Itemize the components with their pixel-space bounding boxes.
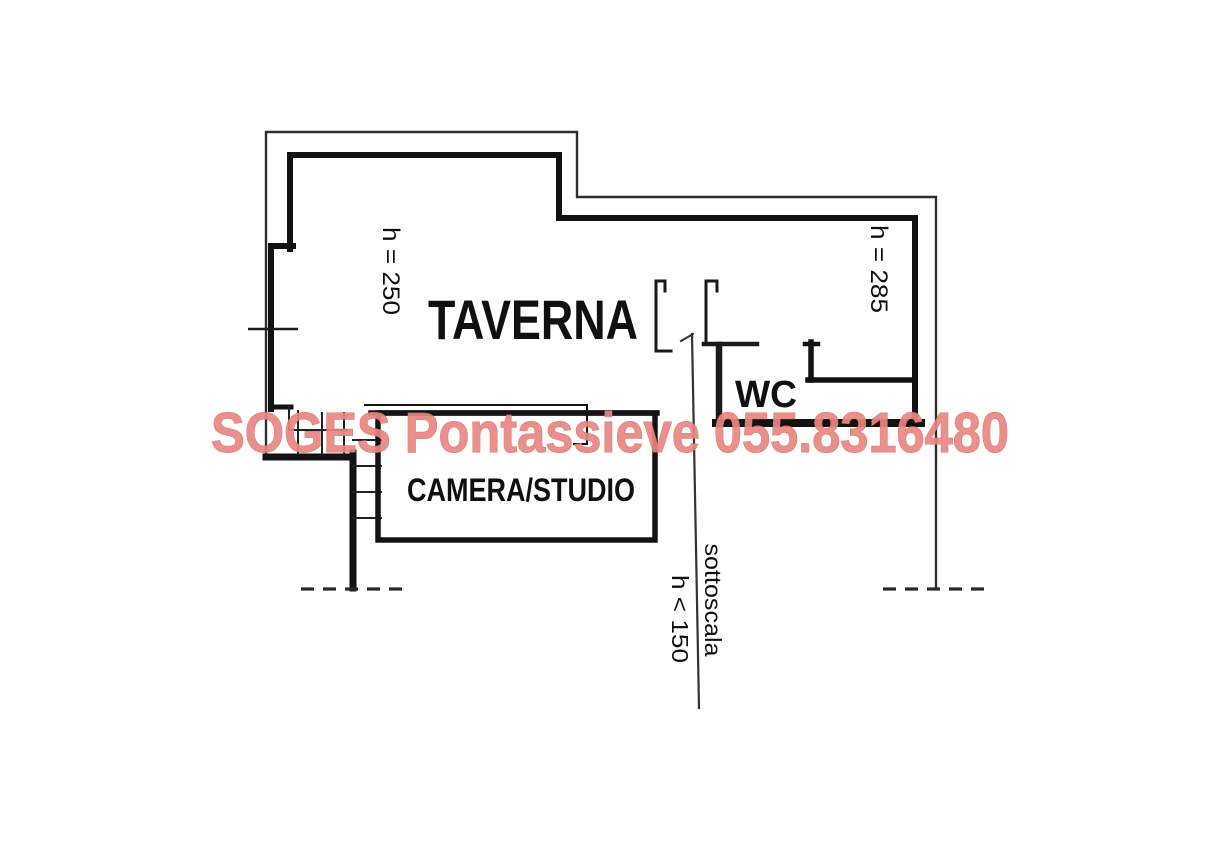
floor-plan-page: TAVERNA h = 250 CAMERA/STUDIO WC h = 285… [0, 0, 1219, 863]
inner-walls [266, 155, 915, 588]
understairs-label: sottoscala [700, 544, 726, 657]
outer-walls [266, 132, 936, 589]
floor-plan-drawing: TAVERNA h = 250 CAMERA/STUDIO WC h = 285… [0, 0, 1219, 863]
taverna-label: TAVERNA [428, 288, 638, 351]
understairs-height-label: h < 150 [667, 575, 693, 663]
taverna-door-left-jamb [656, 281, 671, 351]
outer-wall-path [266, 132, 936, 589]
wc-door-jamb [706, 281, 717, 343]
watermark-text: SOGES Pontassieve 055.8316480 [211, 401, 1009, 465]
taverna-height-label: h = 250 [377, 227, 404, 315]
right-room-height-label: h = 285 [865, 225, 892, 313]
inner-wall-left-jog [271, 246, 293, 409]
camera-studio-label: CAMERA/STUDIO [407, 472, 635, 508]
